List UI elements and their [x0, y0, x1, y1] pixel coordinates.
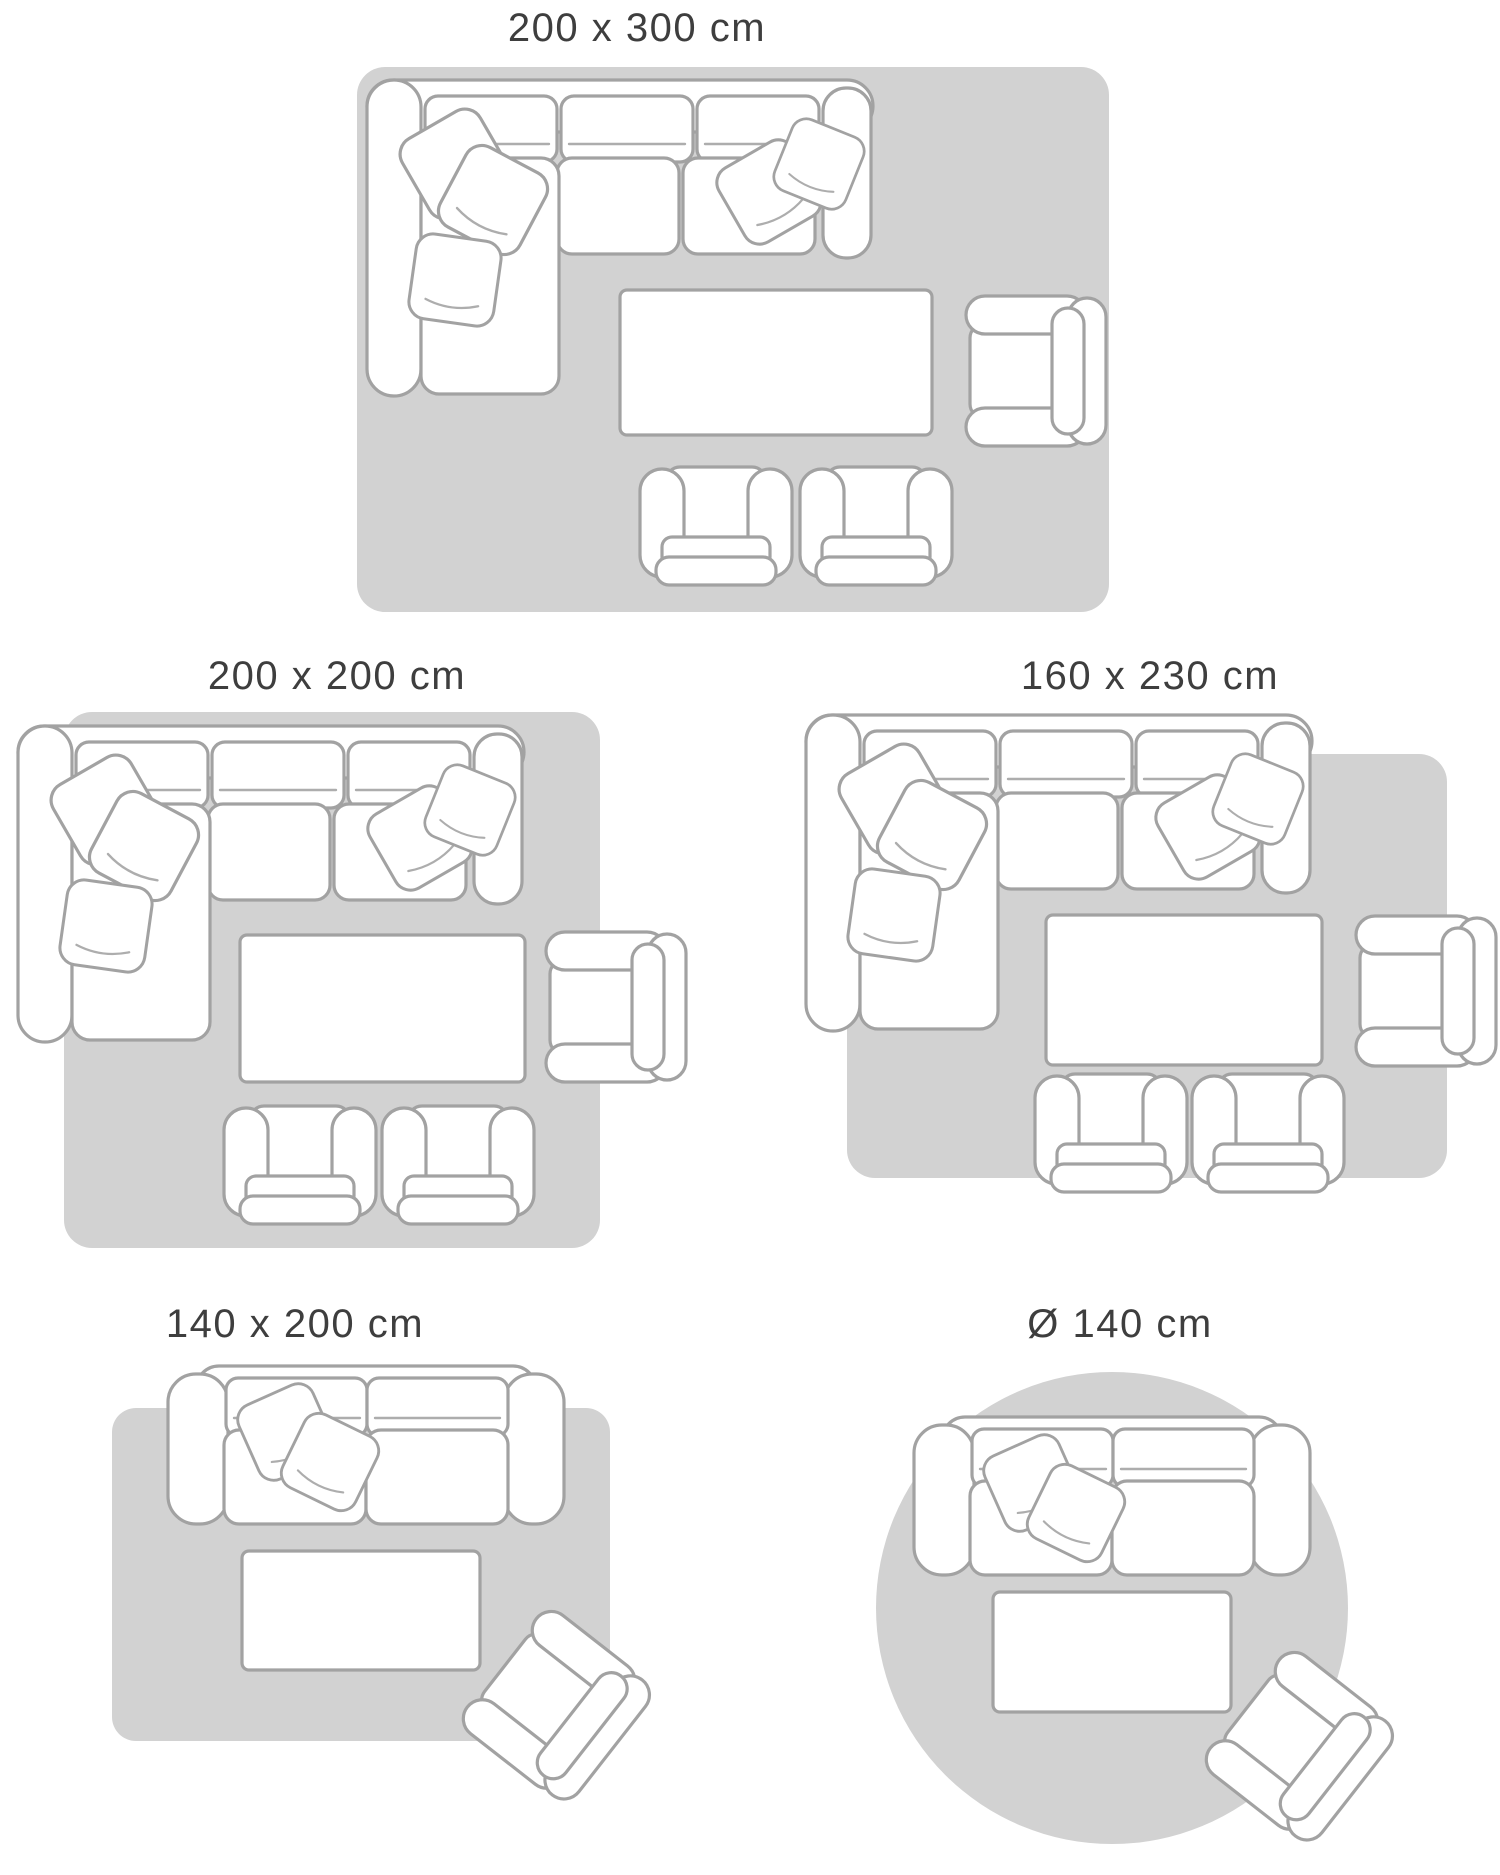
- coffee-table-icon: [1046, 915, 1322, 1065]
- rug-size-guide: 200 x 300 cm 200 x 200 cm 160 x 230 cm: [0, 0, 1500, 1875]
- size-label: 140 x 200 cm: [166, 1302, 424, 1347]
- two-seat-sofa-icon: [168, 1366, 564, 1524]
- size-label: Ø 140 cm: [1027, 1302, 1212, 1347]
- two-seat-sofa-icon: [914, 1417, 1310, 1575]
- layout-illustration: [796, 705, 1500, 1235]
- small-armchair-icon: [1192, 1074, 1344, 1192]
- armchair-icon: [966, 296, 1106, 446]
- size-label: 200 x 200 cm: [208, 654, 466, 699]
- small-armchair-icon: [224, 1106, 376, 1224]
- layout-illustration: [860, 1360, 1420, 1875]
- size-label: 200 x 300 cm: [508, 6, 766, 51]
- layout-illustration: [350, 60, 1120, 630]
- layout-illustration: [10, 700, 700, 1260]
- small-armchair-icon: [1035, 1074, 1187, 1192]
- coffee-table-icon: [240, 935, 525, 1082]
- layout-illustration: [100, 1350, 680, 1875]
- small-armchair-icon: [382, 1106, 534, 1224]
- armchair-icon: [1356, 916, 1496, 1066]
- small-armchair-icon: [640, 467, 792, 585]
- coffee-table-icon: [620, 290, 932, 435]
- coffee-table-icon: [993, 1592, 1231, 1712]
- armchair-icon: [546, 932, 686, 1082]
- small-armchair-icon: [800, 467, 952, 585]
- coffee-table-icon: [242, 1551, 480, 1670]
- size-label: 160 x 230 cm: [1021, 654, 1279, 699]
